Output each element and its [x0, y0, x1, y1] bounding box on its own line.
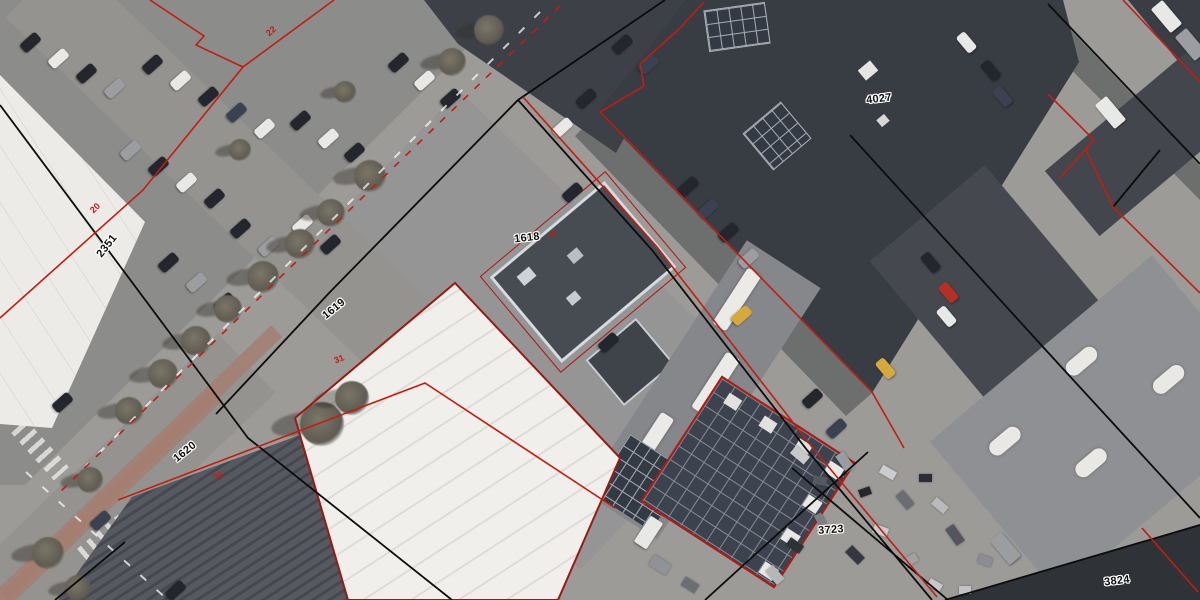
parcel-label-26: 26 — [211, 469, 224, 482]
parcel-label-40: 40 — [548, 230, 559, 240]
parcel-label-22: 22 — [264, 24, 278, 38]
parcel-label-1618: 1618 — [514, 230, 541, 245]
parcel-label-3723: 3723 — [818, 523, 844, 537]
parcel-label-31: 31 — [332, 352, 345, 365]
parcel-label-3824: 3824 — [1104, 573, 1131, 588]
parcel-labels-layer: 40272351161816191620372338242220312640 — [0, 0, 1200, 600]
parcel-label-1620: 1620 — [171, 439, 199, 464]
parcel-label-4027: 4027 — [866, 91, 893, 106]
parcel-label-1619: 1619 — [320, 296, 348, 321]
parcel-label-20: 20 — [88, 201, 102, 215]
aerial-map-viewport[interactable]: 40272351161816191620372338242220312640 — [0, 0, 1200, 600]
parcel-label-2351: 2351 — [94, 232, 119, 260]
